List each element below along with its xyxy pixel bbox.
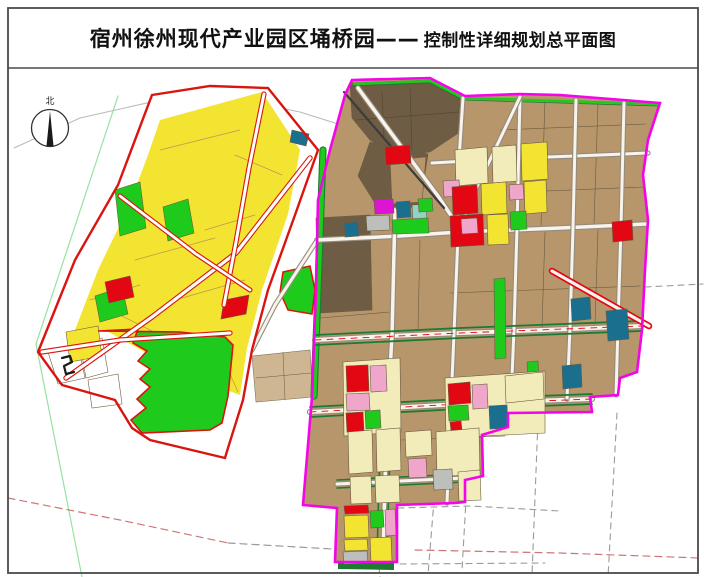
parcel <box>452 185 478 215</box>
parcel <box>494 278 506 359</box>
parcel <box>370 537 392 562</box>
planned-road-dashed <box>398 506 560 511</box>
parcel <box>385 145 411 165</box>
parcel <box>492 145 517 183</box>
parcel <box>448 382 471 405</box>
parcel <box>392 218 429 234</box>
parcel <box>366 215 390 231</box>
parcel <box>571 297 591 321</box>
parcel <box>316 215 372 313</box>
planned-road-dashed <box>608 413 617 577</box>
parcel <box>385 509 396 536</box>
page-subtitle: 控制性详细规划总平面图 <box>424 26 617 51</box>
parcel <box>509 184 524 200</box>
parcel <box>510 211 527 230</box>
parcel <box>458 470 481 501</box>
parcel <box>562 364 582 389</box>
parcel <box>344 505 369 514</box>
parcel <box>489 405 508 429</box>
planned-road-dashed <box>400 563 545 564</box>
parcel <box>344 515 369 538</box>
parcel <box>418 198 433 212</box>
parcel <box>405 430 432 457</box>
parcel <box>408 458 427 478</box>
parcel <box>521 142 548 181</box>
parcel <box>346 393 370 411</box>
village-block <box>252 350 313 402</box>
parcel <box>505 372 544 403</box>
parcel <box>472 384 488 409</box>
parcel <box>433 469 453 490</box>
planned-road-dashed <box>415 550 700 558</box>
plan-map: 北 <box>0 0 704 577</box>
parcel <box>375 475 400 503</box>
parcel <box>374 199 394 214</box>
parcel <box>348 430 373 474</box>
parcel <box>461 218 478 234</box>
parcel <box>370 365 387 392</box>
planned-road-dashed <box>645 284 703 287</box>
parcel <box>481 182 507 215</box>
parcel <box>346 365 369 392</box>
parcel <box>344 222 359 237</box>
planned-road-dashed <box>8 498 228 543</box>
parcel <box>448 405 469 421</box>
parcel <box>455 147 488 186</box>
title-bar: 宿州徐州现代产业园区埇桥园—— 控制性详细规划总平面图 <box>8 8 698 68</box>
page-title: 宿州徐州现代产业园区埇桥园—— <box>90 23 420 53</box>
parcel <box>524 180 547 214</box>
parcel <box>370 510 384 528</box>
parcel <box>344 539 368 551</box>
parcel <box>396 201 411 218</box>
parcel <box>346 412 364 432</box>
parcel <box>606 309 629 341</box>
compass-label: 北 <box>45 96 54 107</box>
parcel <box>487 214 509 245</box>
parcel <box>376 428 401 472</box>
parcel <box>350 476 372 504</box>
parcel <box>365 410 381 429</box>
parcel <box>115 182 146 236</box>
parcel <box>612 220 633 242</box>
plan-sheet: 北 宿州徐州现代产业园区埇桥园—— 控制性详细规划总平面图 <box>0 0 704 577</box>
